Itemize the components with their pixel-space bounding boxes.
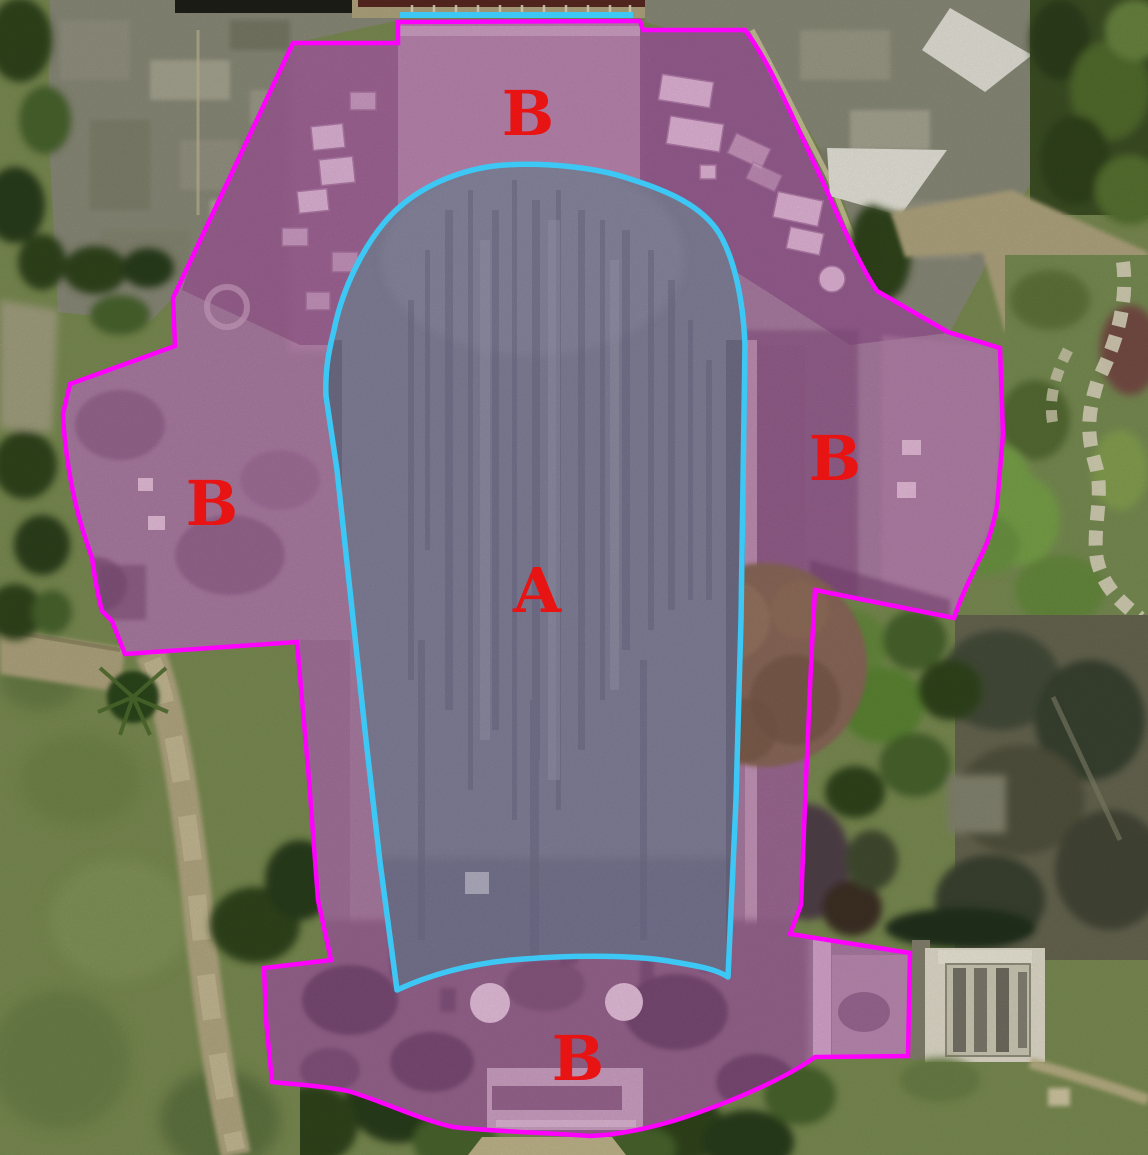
region-label-b-top: B — [502, 77, 554, 150]
region-label-b-bottom: B — [552, 1022, 604, 1095]
aerial-map-canvas: A B B B B — [0, 0, 1148, 1155]
region-label-b-left: B — [186, 467, 238, 540]
photo-grain-overlay — [0, 0, 1148, 1155]
region-label-b-right: B — [809, 422, 861, 495]
region-label-a-center: A — [512, 554, 562, 627]
aerial-annotation-image: A B B B B — [0, 0, 1148, 1155]
